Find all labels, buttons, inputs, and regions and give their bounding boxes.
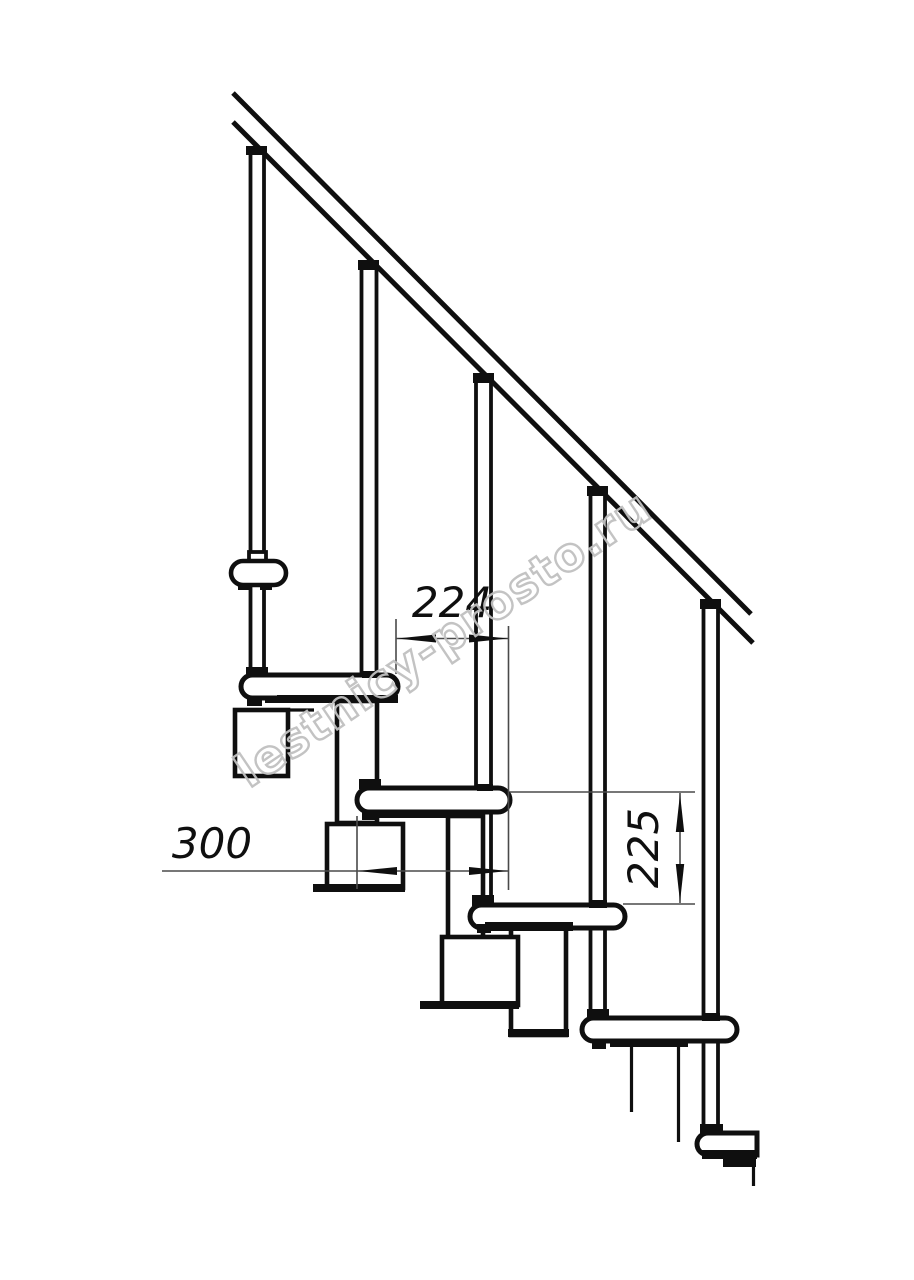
- arrowhead-225-down: [676, 864, 684, 902]
- stub-t1-b: [265, 697, 278, 703]
- pass-clamp-t4: [702, 1013, 720, 1021]
- stub-t3-a: [477, 924, 491, 933]
- baluster-3-foot-collar: [472, 895, 494, 906]
- baluster-5-foot-collar: [700, 1124, 723, 1134]
- baluster-1: [251, 150, 265, 675]
- dim-text-300: 300: [172, 819, 252, 868]
- stub-t4-a: [592, 1041, 606, 1049]
- box-2-bottom-flange: [313, 884, 405, 892]
- arrowhead-225-up: [676, 794, 684, 832]
- stub-t2-b: [381, 811, 393, 817]
- staircase-technical-drawing: 224 300 225 lestnicy-prosto.ru: [0, 0, 914, 1280]
- tread-4: [582, 1018, 737, 1041]
- handrail: [233, 93, 753, 643]
- baluster-5: [704, 602, 719, 1133]
- pass-clamp-t3: [589, 900, 607, 908]
- baluster-4-rail-cap: [587, 486, 608, 496]
- baluster-5-rail-cap: [700, 599, 721, 609]
- baluster-1-rail-cap: [246, 146, 267, 155]
- stub-t2-a: [362, 811, 377, 820]
- stub-t4-b: [610, 1041, 621, 1047]
- baluster-2-rail-cap: [358, 260, 379, 270]
- baluster-4-foot-collar: [587, 1009, 609, 1019]
- baluster-2-foot-collar: [359, 779, 381, 789]
- plate-under-tread-4: [618, 1040, 688, 1047]
- dim-text-225: 225: [619, 808, 668, 888]
- staircase-drawing-page: 224 300 225 lestnicy-prosto.ru: [0, 0, 914, 1280]
- receiver-box-3: [442, 937, 518, 1005]
- baluster-3-rail-cap: [473, 373, 494, 383]
- collar-notch-right: [260, 583, 272, 590]
- baluster-1-foot-collar: [246, 667, 268, 676]
- plate-under-tread-5: [702, 1150, 757, 1159]
- collar-notch-left: [238, 583, 250, 590]
- tread-5-lower-step: [723, 1159, 756, 1167]
- stub-t1-a: [247, 697, 262, 706]
- baluster-1-collar: [231, 561, 286, 585]
- pass-clamp-t2: [477, 784, 493, 791]
- stub-t3-b: [495, 924, 507, 930]
- column-3-base-plate: [508, 1029, 569, 1037]
- box-3-bottom-flange: [420, 1001, 519, 1009]
- tread-2: [357, 788, 510, 812]
- receiver-box-2: [327, 824, 403, 888]
